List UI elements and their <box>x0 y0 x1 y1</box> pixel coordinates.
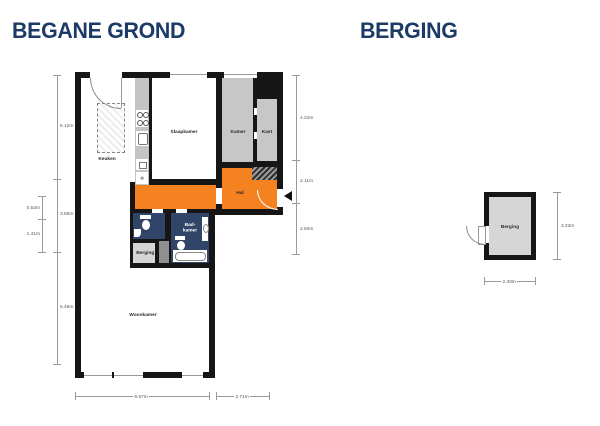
dim-right-2: 2.50m <box>300 227 313 232</box>
dim-bottom-1: 2.71m <box>234 395 250 400</box>
room-slaapkamer <box>152 78 216 179</box>
storage-door-arc <box>466 226 485 245</box>
dim-left-2: 5.49m <box>60 305 73 310</box>
dim-left-0: 5.12m <box>60 124 73 129</box>
woonkamer-window-glass <box>182 375 203 376</box>
sliding-door-mark <box>254 132 257 139</box>
kitchen-island <box>97 103 125 153</box>
dim-far-left-1: 1.41m <box>26 232 40 237</box>
dim-far-left-0: 0.52m <box>26 206 40 211</box>
stove-burner <box>143 120 149 126</box>
bathroom-toilet-tank <box>175 236 185 240</box>
sink-basin <box>138 133 148 145</box>
kamer-window <box>224 72 257 78</box>
meter-closet-hatch <box>252 167 277 180</box>
room-berging-storage <box>489 197 531 255</box>
stove-burner <box>143 112 149 118</box>
wc-toilet-icon <box>142 220 150 230</box>
page-title-begane-grond: BEGANE GROND <box>12 18 185 44</box>
wc-toilet-tank <box>140 215 151 219</box>
dim-right-1: 2.11m <box>300 179 313 184</box>
sliding-door-mark <box>254 108 257 115</box>
dim-storage-right: 3.23m <box>561 224 574 229</box>
room-hal-strip <box>135 185 216 209</box>
wc-sink-icon <box>134 229 141 237</box>
badkamer-door-opening <box>176 209 187 213</box>
dim-right-0: 4.22m <box>300 116 313 121</box>
bathroom-sink-basin <box>203 224 209 233</box>
floorplan-page: BEGANE GROND BERGING <box>0 0 600 426</box>
room-keuken-woonkamer-passage <box>81 182 130 268</box>
dim-bottom-0: 6.57m <box>133 395 149 400</box>
wc-door-opening <box>152 209 163 213</box>
bathtub-inner <box>175 252 206 261</box>
slaapkamer-window <box>170 72 207 78</box>
window-mullion <box>112 372 114 378</box>
slaapkamer-window-glass <box>170 74 207 75</box>
room-kast <box>257 99 277 161</box>
fridge-icon <box>136 172 148 184</box>
dim-storage-bottom: 2.33m <box>501 280 517 285</box>
entrance-arrow-icon <box>284 191 292 201</box>
oven-window <box>139 162 147 169</box>
room-berging-intern <box>133 243 155 263</box>
room-kamer <box>222 78 253 162</box>
shaft <box>159 241 169 263</box>
dim-left-1: 3.55m <box>60 212 73 217</box>
kamer-window-glass <box>224 74 257 75</box>
room-woonkamer <box>81 268 209 372</box>
bathroom-toilet-icon <box>177 241 185 250</box>
page-title-berging: BERGING <box>360 18 458 44</box>
